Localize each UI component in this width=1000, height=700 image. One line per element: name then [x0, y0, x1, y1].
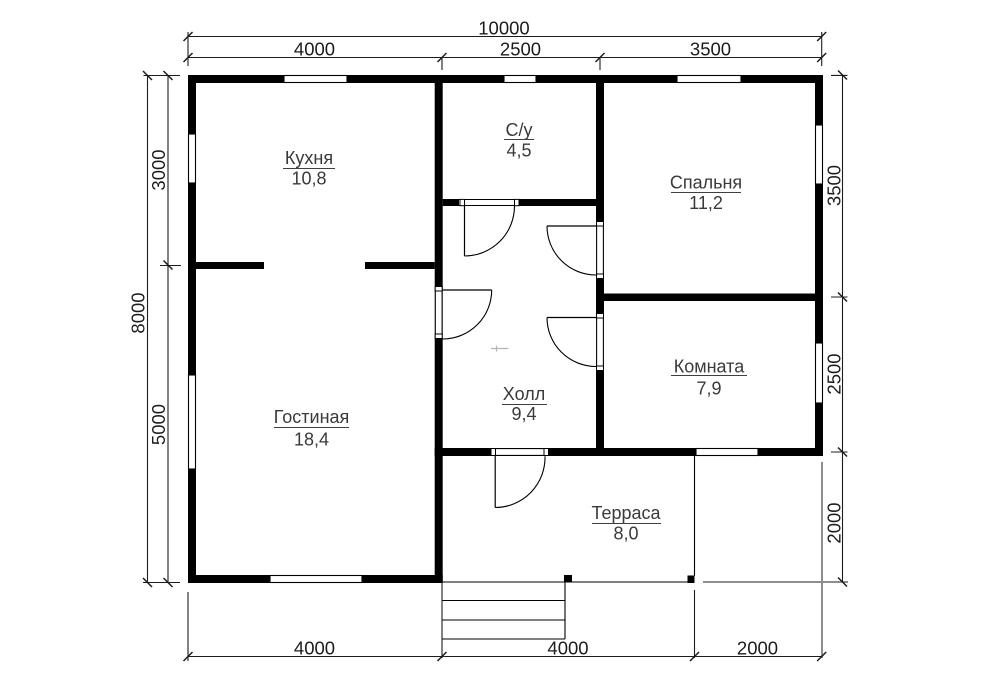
svg-text:Гостиная: Гостиная: [274, 407, 350, 427]
svg-text:8,0: 8,0: [613, 524, 638, 544]
svg-text:Спальня: Спальня: [670, 173, 742, 193]
svg-text:4000: 4000: [294, 638, 335, 659]
svg-text:Терраса: Терраса: [591, 503, 661, 523]
svg-text:18,4: 18,4: [294, 430, 329, 450]
svg-text:4,5: 4,5: [506, 141, 531, 161]
svg-text:8000: 8000: [128, 292, 149, 333]
svg-text:Холл: Холл: [503, 384, 545, 404]
svg-text:4000: 4000: [547, 638, 588, 659]
svg-text:9,4: 9,4: [511, 404, 536, 424]
svg-text:4000: 4000: [294, 39, 335, 60]
svg-text:7,9: 7,9: [696, 379, 721, 399]
svg-text:Кухня: Кухня: [285, 148, 333, 168]
svg-text:10,8: 10,8: [291, 169, 326, 189]
svg-text:3000: 3000: [148, 149, 169, 190]
svg-text:3500: 3500: [824, 165, 845, 206]
svg-text:С/у: С/у: [506, 120, 533, 140]
svg-text:2500: 2500: [824, 353, 845, 394]
svg-text:2000: 2000: [824, 502, 845, 543]
svg-text:Комната: Комната: [674, 357, 745, 377]
svg-text:2500: 2500: [500, 39, 541, 60]
svg-text:2000: 2000: [737, 638, 778, 659]
svg-text:10000: 10000: [478, 18, 529, 39]
svg-text:5000: 5000: [148, 404, 169, 445]
svg-text:3500: 3500: [690, 39, 731, 60]
svg-text:11,2: 11,2: [689, 193, 723, 213]
